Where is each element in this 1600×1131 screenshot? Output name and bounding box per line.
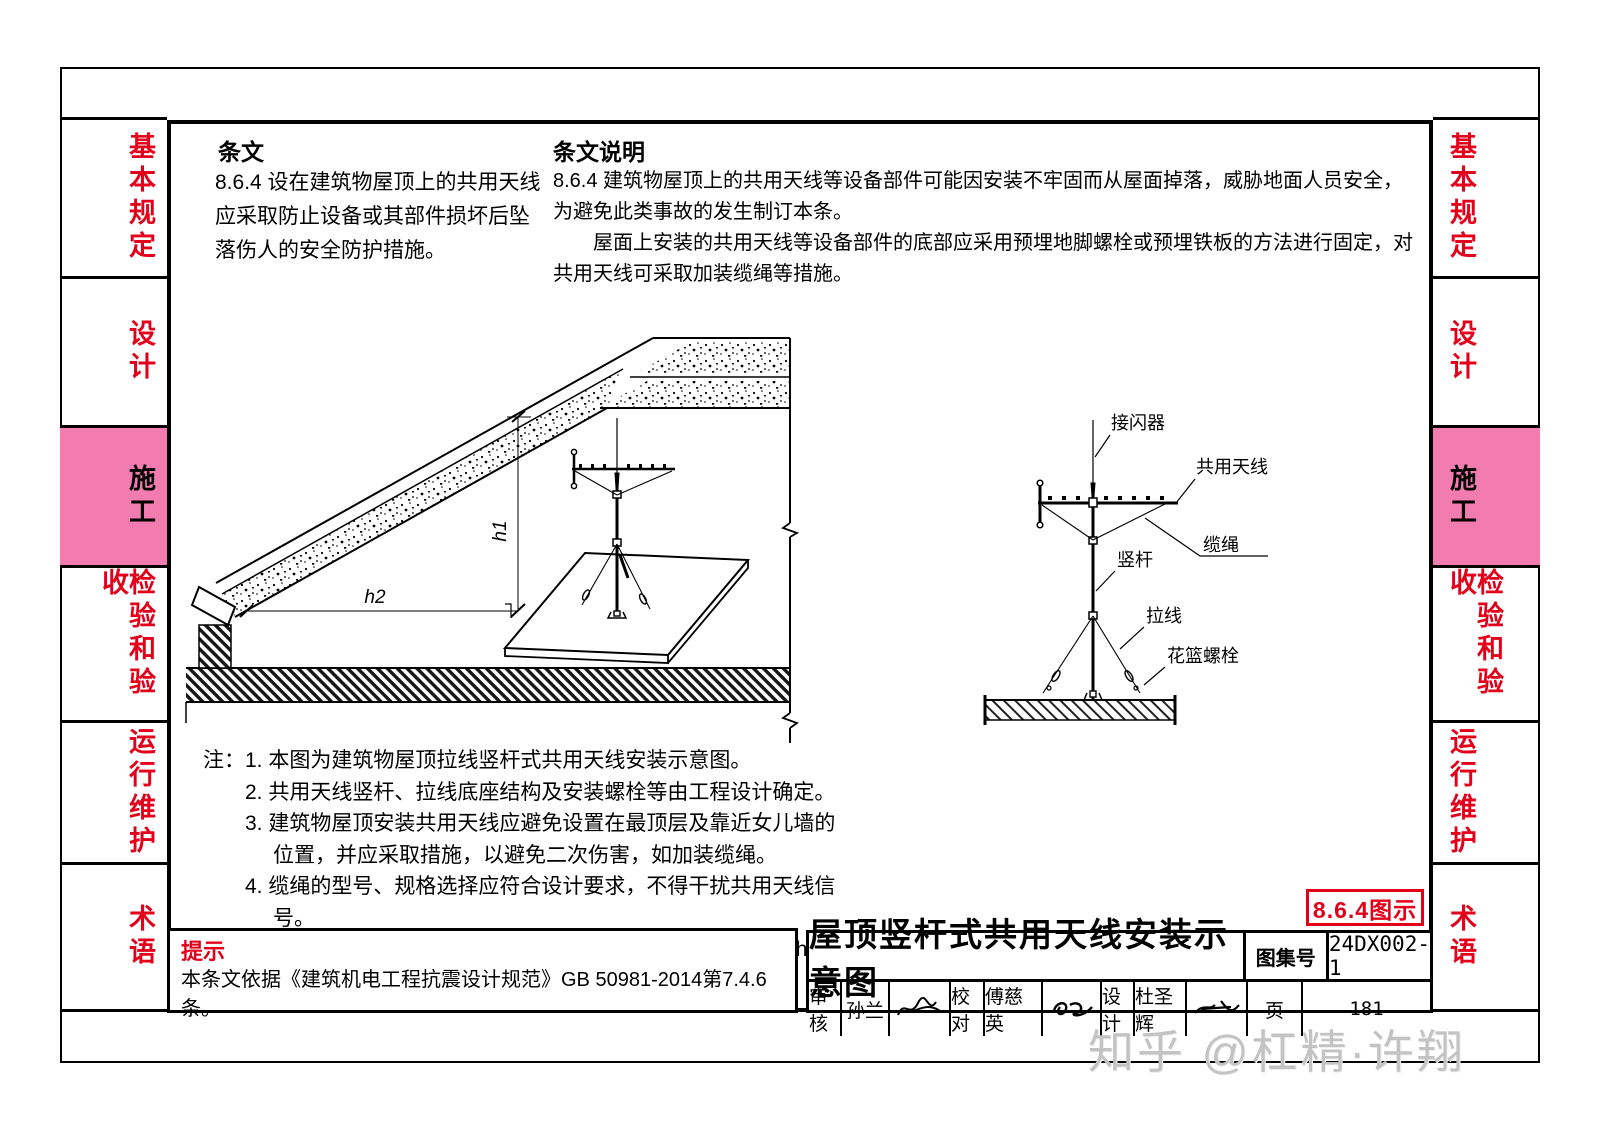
floor-slab-hatch bbox=[186, 668, 790, 723]
atlas-no-value: 24DX002-1 bbox=[1329, 933, 1430, 979]
review-name: 孙兰 bbox=[842, 982, 890, 1036]
sidebar-item-operation-right[interactable]: 运行维护 bbox=[1433, 723, 1540, 865]
label-guy-wire: 拉线 bbox=[1146, 606, 1182, 626]
antenna-elevation-diagram: 接闪器 共用天线 缆绳 竖杆 拉线 花篮螺栓 bbox=[960, 395, 1295, 725]
sidebar-item-basic-rules-right[interactable]: 基本规定 bbox=[1433, 120, 1540, 279]
sidebar-item-label: 设计 bbox=[1447, 319, 1474, 385]
sidebar-left-spacer-top bbox=[60, 67, 167, 120]
clause-explanation-header: 条文说明 bbox=[553, 133, 645, 167]
atlas-no-label: 图集号 bbox=[1246, 933, 1329, 979]
sidebar-item-label: 基本规定 bbox=[1447, 132, 1474, 264]
proof-name: 傅慈英 bbox=[985, 982, 1043, 1036]
review-signature bbox=[890, 982, 951, 1036]
sidebar-item-label: 基本规定 bbox=[126, 132, 153, 264]
label-lightning-rod: 接闪器 bbox=[1111, 413, 1165, 433]
label-mast: 竖杆 bbox=[1117, 550, 1153, 570]
note-item-1: 1. 本图为建筑物屋顶拉线竖杆式共用天线安装示意图。 bbox=[245, 745, 843, 777]
tip-body: 本条文依据《建筑机电工程抗震设计规范》GB 50981-2014第7.4.6条。 bbox=[181, 963, 786, 1021]
drawing-title: 屋顶竖杆式共用天线安装示意图 bbox=[809, 933, 1246, 979]
sidebar-item-construction[interactable]: 施工 bbox=[60, 428, 167, 568]
sidebar-item-terms-right[interactable]: 术语 bbox=[1433, 865, 1540, 1012]
title-block: 屋顶竖杆式共用天线安装示意图 图集号 24DX002-1 审核 孙兰 校对 傅慈… bbox=[806, 930, 1433, 1013]
clause-explanation-para2: 屋面上安装的共用天线等设备部件的底部应采用预埋地脚螺栓或预埋铁板的方法进行固定，… bbox=[553, 228, 1423, 290]
watermark: 知乎 @杠精·许翔 bbox=[1088, 1016, 1466, 1082]
sidebar-item-label: 施工 bbox=[1447, 464, 1474, 530]
label-turnbuckle: 花篮螺栓 bbox=[1167, 646, 1239, 666]
sidebar-item-basic-rules[interactable]: 基本规定 bbox=[60, 120, 167, 279]
label-common-antenna: 共用天线 bbox=[1196, 457, 1268, 477]
sidebar-item-label: 检验和验收 bbox=[99, 568, 153, 720]
sidebar-item-operation[interactable]: 运行维护 bbox=[60, 723, 167, 865]
roof-section-diagram: h1 h2 bbox=[175, 325, 815, 745]
tip-header: 提示 bbox=[181, 934, 225, 966]
atlas-page: 基本规定 设计 施工 检验和验收 运行维护 术语 基本规定 设计 施工 检验和验… bbox=[0, 0, 1600, 1131]
clause-figure-badge: 8.6.4图示 bbox=[1306, 889, 1424, 926]
sidebar-item-inspection[interactable]: 检验和验收 bbox=[60, 568, 167, 723]
clause-body: 8.6.4 设在建筑物屋顶上的共用天线应采取防止设备或其部件损坏后坠落伤人的安全… bbox=[215, 166, 547, 268]
proof-label: 校对 bbox=[951, 982, 985, 1036]
sidebar-item-construction-right[interactable]: 施工 bbox=[1433, 428, 1540, 568]
antenna-elevation bbox=[1037, 420, 1178, 700]
sidebar-item-label: 检验和验收 bbox=[1447, 568, 1501, 720]
clause-explanation-body: 8.6.4 建筑物屋顶上的共用天线等设备部件可能因安装不牢固而从屋面掉落，威胁地… bbox=[553, 166, 1423, 290]
ground-hatch bbox=[985, 695, 1175, 725]
note-item-3: 3. 建筑物屋顶安装共用天线应避免设置在最顶层及靠近女儿墙的位置，并应采取措施，… bbox=[245, 808, 843, 871]
label-cable-rope: 缆绳 bbox=[1203, 535, 1239, 555]
sidebar-item-inspection-right[interactable]: 检验和验收 bbox=[1433, 568, 1540, 723]
clause-header: 条文 bbox=[218, 133, 264, 167]
review-label: 审核 bbox=[809, 982, 842, 1036]
roof-slab bbox=[600, 338, 790, 408]
clause-explanation-para1: 8.6.4 建筑物屋顶上的共用天线等设备部件可能因安装不牢固而从屋面掉落，威胁地… bbox=[553, 166, 1423, 228]
sidebar-item-label: 术语 bbox=[1447, 904, 1474, 970]
sidebar-item-label: 运行维护 bbox=[1447, 727, 1474, 859]
parapet-footing-hatch bbox=[199, 625, 231, 668]
sidebar-item-design-right[interactable]: 设计 bbox=[1433, 279, 1540, 428]
note-item-4: 4. 缆绳的型号、规格选择应符合设计要求，不得干扰共用天线信号。 bbox=[245, 871, 843, 934]
sidebar-item-design[interactable]: 设计 bbox=[60, 279, 167, 428]
dim-label-h2: h2 bbox=[364, 587, 386, 608]
note-item-2: 2. 共用天线竖杆、拉线底座结构及安装螺栓等由工程设计确定。 bbox=[245, 777, 843, 809]
sidebar-item-label: 施工 bbox=[126, 464, 153, 530]
sidebar-item-label: 运行维护 bbox=[126, 727, 153, 859]
sidebar-right-spacer-top bbox=[1433, 67, 1540, 120]
dim-label-h1: h1 bbox=[490, 520, 511, 541]
sidebar-item-terms[interactable]: 术语 bbox=[60, 865, 167, 1012]
sidebar-item-label: 设计 bbox=[126, 319, 153, 385]
sidebar-item-label: 术语 bbox=[126, 904, 153, 970]
